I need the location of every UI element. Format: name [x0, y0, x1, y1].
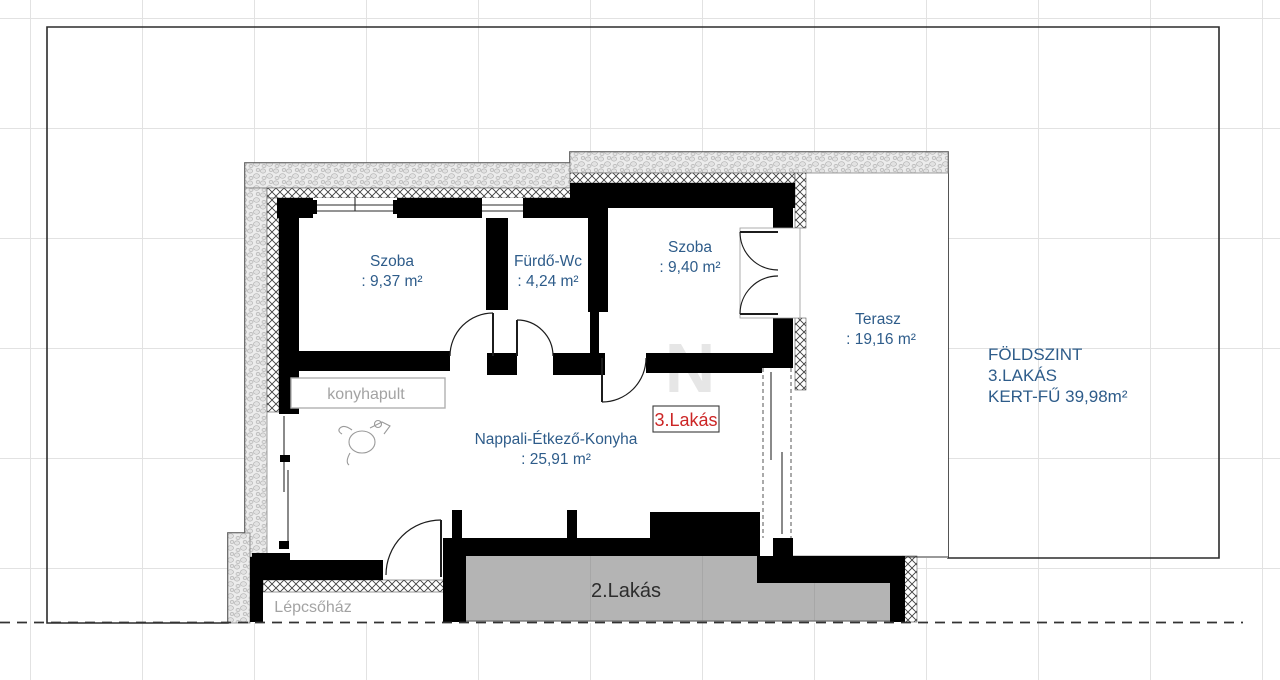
svg-text:: 19,16 m²: : 19,16 m² [846, 331, 916, 348]
svg-text:: 9,37 m²: : 9,37 m² [361, 273, 422, 290]
konyhapult-label: konyhapult [327, 386, 405, 403]
svg-text:FÖLDSZINT: FÖLDSZINT [988, 345, 1082, 364]
unit2-label: 2.Lakás [591, 580, 661, 602]
svg-text:Szoba: Szoba [668, 239, 712, 256]
stairwell-label: Lépcsőház [274, 599, 351, 616]
svg-text:Fürdő-Wc: Fürdő-Wc [514, 253, 582, 270]
floor-plan-canvas: N [0, 0, 1280, 680]
svg-text:: 25,91 m²: : 25,91 m² [521, 451, 591, 468]
svg-text:3.LAKÁS: 3.LAKÁS [988, 366, 1057, 385]
svg-text:: 4,24 m²: : 4,24 m² [517, 273, 578, 290]
svg-text:Nappali-Étkező-Konyha: Nappali-Étkező-Konyha [475, 431, 638, 448]
double-door [740, 228, 800, 318]
svg-text:: 9,40 m²: : 9,40 m² [659, 259, 720, 276]
svg-text:Terasz: Terasz [855, 311, 901, 328]
svg-text:3.Lakás: 3.Lakás [654, 410, 717, 430]
svg-text:KERT-FŰ 39,98m²: KERT-FŰ 39,98m² [988, 387, 1128, 406]
unit3-badge: 3.Lakás [653, 406, 719, 432]
sliding-door [762, 368, 793, 538]
svg-text:Szoba: Szoba [370, 253, 414, 270]
